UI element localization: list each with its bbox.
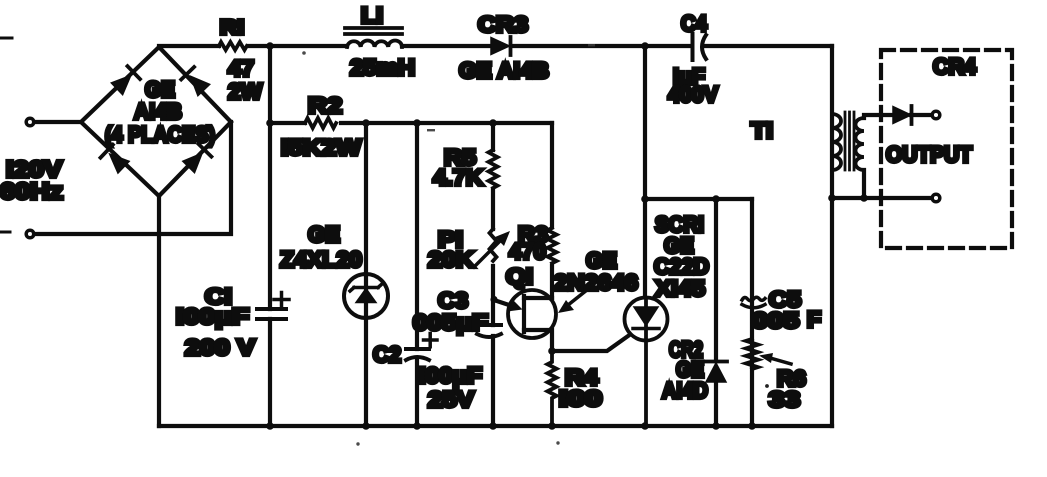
svg-text:F: F [807,307,821,332]
svg-text:QI: QI [506,264,533,289]
svg-text:C2: C2 [373,342,401,367]
svg-text:33: 33 [769,387,800,412]
svg-text:R2: R2 [308,93,342,118]
svg-text:I00μF: I00μF [176,304,249,329]
svg-text:4.7K: 4.7K [433,165,483,190]
svg-text:25V: 25V [428,387,474,412]
svg-text:CR4: CR4 [933,54,977,79]
svg-text:I00μF: I00μF [419,363,482,388]
svg-text:OUTPUT: OUTPUT [886,142,973,167]
svg-text:400V: 400V [668,82,718,107]
svg-text:XI45: XI45 [655,276,705,301]
svg-text:LI: LI [361,3,383,28]
svg-text:I00: I00 [559,386,602,411]
svg-text:Z4XL20: Z4XL20 [280,247,362,272]
svg-text:GE: GE [308,222,340,247]
svg-text:47: 47 [228,56,254,81]
svg-text:005: 005 [752,308,799,333]
svg-text:2N2646: 2N2646 [554,270,638,295]
svg-text:200 V: 200 V [185,335,255,360]
svg-text:CR3: CR3 [478,12,528,37]
svg-text:20K: 20K [428,247,474,272]
svg-text:GE AI4B: GE AI4B [459,58,549,83]
svg-text:60Hz: 60Hz [0,178,63,204]
svg-text:25mH: 25mH [350,55,415,80]
svg-text:AI4B: AI4B [134,99,182,124]
svg-text:470: 470 [509,239,546,264]
svg-text:2W: 2W [228,79,262,104]
svg-text:I5K2W: I5K2W [281,135,361,160]
svg-text:C4: C4 [681,11,708,36]
svg-text:RI: RI [220,17,244,39]
svg-text:TI: TI [751,118,773,143]
svg-text:AI4D: AI4D [662,378,708,403]
svg-text:(4 PLACES): (4 PLACES) [105,122,215,147]
svg-text:005μF: 005μF [413,310,488,335]
